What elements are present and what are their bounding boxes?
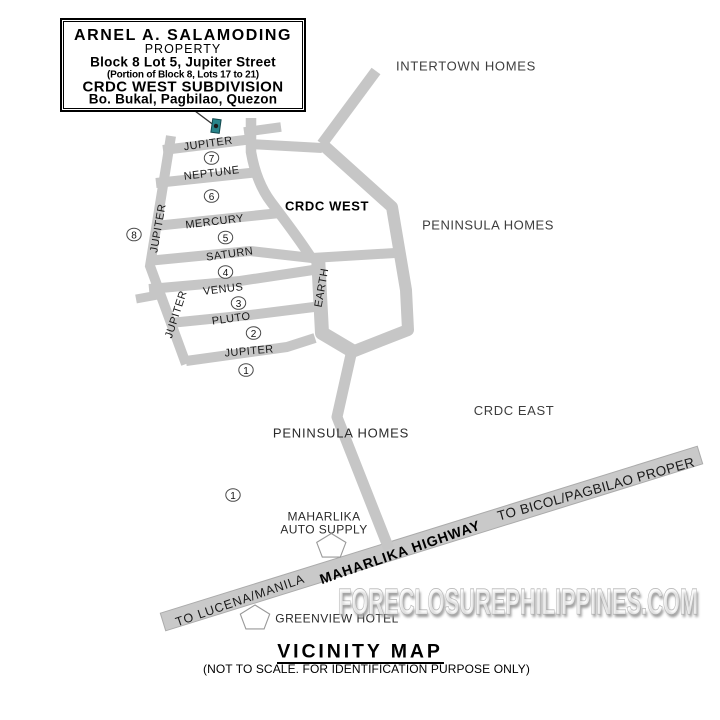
svg-text:FORECLOSUREPHILIPPINES.COM: FORECLOSUREPHILIPPINES.COM xyxy=(338,581,698,622)
svg-text:5: 5 xyxy=(223,234,229,245)
svg-text:MAHARLIKA: MAHARLIKA xyxy=(288,510,361,524)
svg-text:2: 2 xyxy=(251,329,257,340)
svg-text:TO BICOL/PAGBILAO PROPER: TO BICOL/PAGBILAO PROPER xyxy=(496,454,697,523)
svg-text:PLUTO: PLUTO xyxy=(211,310,251,327)
svg-text:1: 1 xyxy=(230,491,236,502)
svg-text:MERCURY: MERCURY xyxy=(185,212,245,231)
svg-text:4: 4 xyxy=(223,268,229,279)
svg-text:1: 1 xyxy=(243,366,249,377)
svg-text:6: 6 xyxy=(209,192,215,203)
svg-text:3: 3 xyxy=(236,299,242,310)
svg-text:AUTO SUPPLY: AUTO SUPPLY xyxy=(280,523,367,537)
svg-text:PENINSULA HOMES: PENINSULA HOMES xyxy=(273,426,409,441)
svg-text:8: 8 xyxy=(131,231,137,242)
svg-text:7: 7 xyxy=(209,154,215,165)
svg-text:INTERTOWN HOMES: INTERTOWN HOMES xyxy=(396,59,536,74)
svg-text:SATURN: SATURN xyxy=(205,245,254,263)
svg-text:CRDC WEST: CRDC WEST xyxy=(285,199,369,214)
svg-text:JUPITER: JUPITER xyxy=(183,135,234,154)
svg-text:JUPITER: JUPITER xyxy=(224,343,274,359)
svg-text:CRDC EAST: CRDC EAST xyxy=(474,403,555,418)
svg-text:PENINSULA HOMES: PENINSULA HOMES xyxy=(422,218,554,233)
